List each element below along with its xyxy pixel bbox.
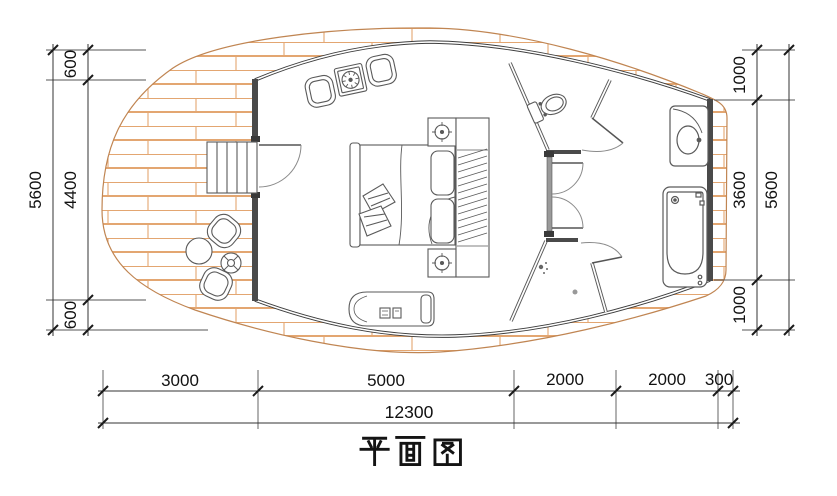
wardrobe [456,118,489,277]
dim-left-total-5600: 5600 [26,171,45,209]
floor-plan-sheet: 平面图 [0,0,837,496]
dim-left-600-bottom: 600 [61,301,80,329]
bed-pillow [431,151,454,195]
bed-footboard [350,143,360,247]
patio-table [334,63,367,96]
deck-side-table [221,253,241,273]
title-glyph-ping [361,438,388,464]
shower-drain [573,290,578,295]
drawing-title [361,437,460,464]
dim-right-1000-top: 1000 [730,56,749,94]
dim-bottom-5000: 5000 [367,371,405,390]
dim-right-1000-bottom: 1000 [730,286,749,324]
dim-bottom-3000: 3000 [161,371,199,390]
title-glyph-mian [397,437,424,464]
shower-head [539,265,543,269]
dim-bottom-2000-a: 2000 [546,370,584,389]
dim-right-total-5600: 5600 [762,171,781,209]
dim-bottom-2000-b: 2000 [648,370,686,389]
nightstand-top [428,118,456,146]
dim-right-3600: 3600 [730,171,749,209]
faucet-dot [697,138,701,142]
corridor-wall-stub [547,157,552,231]
dim-bottom-300: 300 [705,370,733,389]
entry-stairs [207,142,257,193]
bed-pillow [431,199,454,243]
bathtub-symbol [663,187,707,287]
dim-left-600-top: 600 [61,50,80,78]
door-jamb [251,136,260,142]
dim-left-4400: 4400 [61,171,80,209]
dim-bottom-total-12300: 12300 [385,402,434,422]
nightstand-bottom [428,249,456,277]
floor-plan-drawing: 600 4400 600 5600 1000 3600 1000 5600 30… [0,0,837,496]
title-glyph-tu [435,440,461,465]
deck-round-table [186,238,212,264]
chaise-lounge [349,292,434,326]
washbasin-vanity [670,106,708,166]
